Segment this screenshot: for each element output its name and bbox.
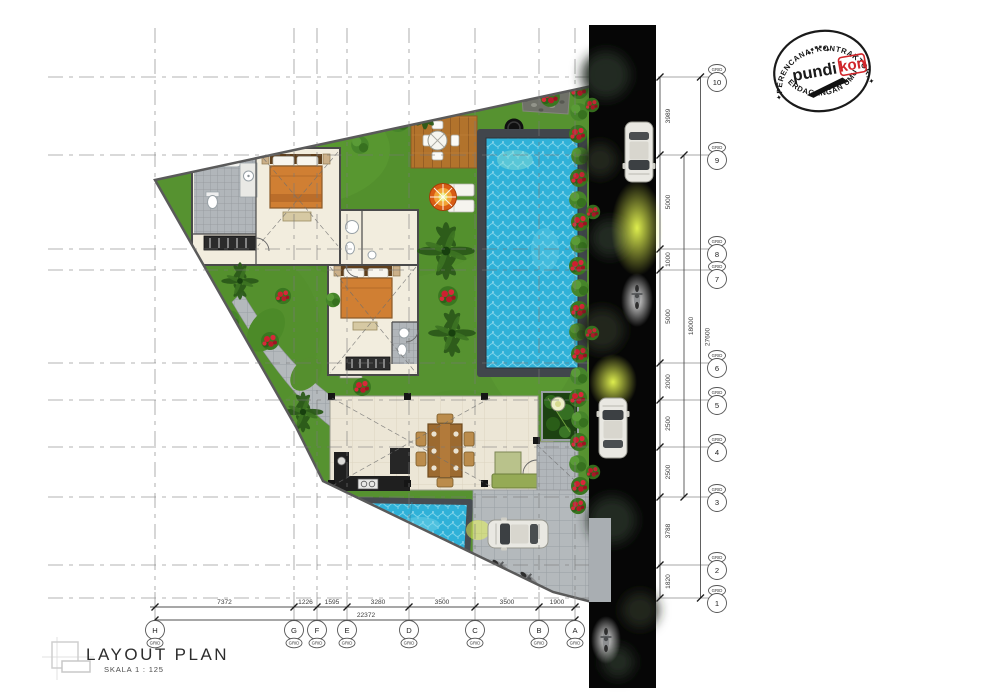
svg-text:GRID: GRID	[712, 239, 723, 244]
lap-pool	[477, 129, 587, 377]
toilet	[398, 344, 407, 356]
bush	[326, 293, 340, 307]
dim-label: 7372	[217, 599, 232, 606]
nightstand	[323, 154, 330, 164]
svg-text:GRID: GRID	[712, 555, 723, 560]
grid-bubble-D: DGRID	[400, 621, 419, 648]
dim-label: 1595	[325, 599, 340, 606]
dim-label: 1900	[550, 599, 565, 606]
title-block: LAYOUT PLAN SKALA 1 : 125	[42, 637, 229, 680]
grid-bubble-3: GRID3	[708, 485, 727, 512]
dim-total: 27600	[705, 328, 712, 347]
star-icon: ✦	[868, 77, 875, 86]
svg-text:GRID: GRID	[712, 264, 723, 269]
svg-text:GRID: GRID	[342, 641, 353, 646]
dim-label: 5000	[665, 309, 672, 324]
umbrella	[430, 184, 457, 211]
dim-label: 5000	[665, 194, 672, 209]
headlight-glow	[611, 180, 663, 276]
svg-text:D: D	[406, 626, 412, 635]
flower-bush	[261, 332, 279, 350]
driveway-apron	[589, 518, 611, 602]
dim-label: 3788	[665, 523, 672, 538]
wardrobe1	[204, 236, 256, 250]
dim-label: 1820	[665, 574, 672, 589]
road-car-southbound	[623, 122, 656, 182]
garden-lamp-bulb	[555, 401, 561, 407]
page-title: LAYOUT PLAN	[86, 645, 229, 664]
svg-text:GRID: GRID	[712, 588, 723, 593]
svg-text:E: E	[344, 626, 349, 635]
small-pool	[353, 500, 470, 556]
kitchen-sink	[338, 457, 346, 465]
grid-bubble-E: EGRID	[338, 621, 357, 648]
grid-bubble-F: FGRID	[308, 621, 327, 648]
sink	[368, 251, 376, 259]
bush	[351, 136, 369, 154]
svg-text:GRID: GRID	[712, 353, 723, 358]
palm-tree	[270, 104, 314, 148]
dim-subtotal: 18000	[688, 317, 695, 336]
headlight-glow	[466, 520, 490, 540]
flower-bush	[438, 286, 458, 306]
svg-text:H: H	[152, 626, 157, 635]
grid-bubble-5: GRID5	[708, 388, 727, 415]
grid-bubble-6: GRID6	[708, 351, 727, 378]
svg-text:F: F	[315, 626, 320, 635]
grid-bubble-9: GRID9	[708, 143, 727, 170]
dim-label: 3500	[500, 599, 515, 606]
grid-bubble-10: GRID10	[708, 65, 727, 92]
svg-text:2: 2	[715, 566, 719, 575]
svg-text:GRID: GRID	[570, 641, 581, 646]
grid-bubble-1: GRID1	[708, 586, 727, 613]
dim-label: 2500	[665, 416, 672, 431]
bed-bench	[283, 212, 311, 221]
flower-bush	[403, 82, 421, 100]
svg-text:7: 7	[715, 275, 719, 284]
dim-label: 2500	[665, 464, 672, 479]
flower-bush	[223, 103, 241, 121]
flower-bush	[244, 383, 260, 399]
grid-bubble-2: GRID2	[708, 553, 727, 580]
grid-bubble-A: AGRID	[566, 621, 585, 648]
svg-text:GRID: GRID	[712, 145, 723, 150]
svg-text:GRID: GRID	[470, 641, 481, 646]
dim-label: 3500	[435, 599, 450, 606]
svg-text:10: 10	[713, 78, 721, 87]
layout-plan-sheet: 3989 5000 1000 5000 2000 2500 2500 3788 …	[0, 0, 989, 700]
page-scale: SKALA 1 : 125	[104, 665, 164, 674]
svg-text:GRID: GRID	[312, 641, 323, 646]
grid-col-bubbles: HGRID GGRID FGRID EGRID DGRID CGRID BGRI…	[146, 621, 585, 648]
grid-bubble-H: HGRID	[146, 621, 165, 648]
dim-ticks	[657, 74, 705, 602]
layout-plan-drawing: 3989 5000 1000 5000 2000 2500 2500 3788 …	[0, 0, 989, 700]
flower-bush	[353, 378, 371, 396]
svg-text:GRID: GRID	[534, 641, 545, 646]
kitchen-cabinet	[390, 448, 410, 474]
grid-bubble-7: GRID7	[708, 262, 727, 289]
dimensions-bottom: 7372 1226 1595 3280 3500 3500 1900 22372	[150, 592, 580, 624]
grid-bubble-G: GGRID	[285, 621, 304, 648]
svg-text:1: 1	[715, 599, 719, 608]
dim-label: 3989	[665, 108, 672, 123]
flower-bush	[275, 288, 291, 304]
road-car-northbound	[597, 398, 630, 458]
grid-bubble-4: GRID4	[708, 435, 727, 462]
svg-text:GRID: GRID	[289, 641, 300, 646]
svg-text:8: 8	[715, 250, 719, 259]
svg-text:G: G	[291, 626, 297, 635]
site-plan	[140, 70, 600, 615]
svg-text:9: 9	[715, 156, 719, 165]
svg-text:B: B	[536, 626, 541, 635]
site-interior	[140, 70, 600, 615]
dim-label: 3280	[371, 599, 386, 606]
svg-text:GRID: GRID	[712, 437, 723, 442]
grid-bubble-B: BGRID	[530, 621, 549, 648]
grid-bubble-C: CGRID	[466, 621, 485, 648]
toilet	[208, 196, 218, 209]
svg-text:GRID: GRID	[712, 487, 723, 492]
svg-text:5: 5	[715, 401, 719, 410]
svg-text:GRID: GRID	[404, 641, 415, 646]
grid-bubble-8: GRID8	[708, 237, 727, 264]
shower-base	[346, 221, 359, 234]
pillow	[273, 157, 294, 166]
palm-tree	[251, 431, 285, 465]
svg-text:4: 4	[715, 448, 719, 457]
coffee-table	[495, 452, 521, 474]
dim-total: 22372	[357, 612, 376, 619]
svg-text:6: 6	[715, 364, 719, 373]
pillow	[297, 157, 318, 166]
svg-text:C: C	[472, 626, 478, 635]
dimensions-right: 3989 5000 1000 5000 2000 2500 2500 3788 …	[657, 74, 712, 602]
wardrobe2	[346, 357, 390, 370]
bush	[460, 85, 479, 104]
dim-label: 2000	[665, 374, 672, 389]
svg-text:GRID: GRID	[712, 390, 723, 395]
utility-box	[488, 90, 497, 99]
dim-label: 1226	[298, 599, 313, 606]
dim-label: 1000	[665, 252, 672, 267]
hall-wc-floor	[340, 210, 418, 265]
road	[580, 25, 663, 688]
bed-bench	[353, 322, 377, 330]
sink	[399, 328, 409, 338]
svg-text:GRID: GRID	[712, 67, 723, 72]
svg-text:3: 3	[715, 498, 719, 507]
